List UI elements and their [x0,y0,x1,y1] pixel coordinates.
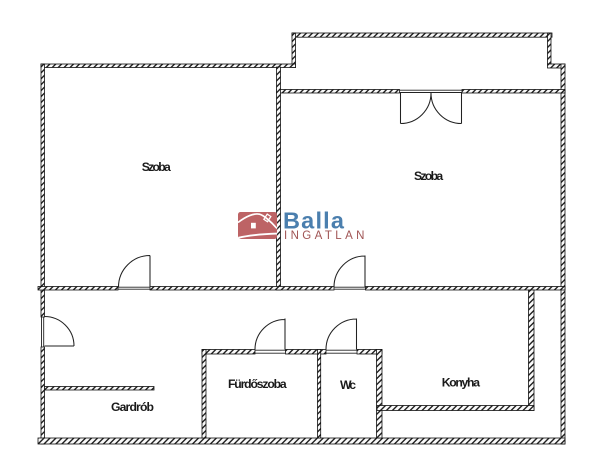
svg-text:INGATLAN: INGATLAN [284,230,368,242]
svg-text:Szoba: Szoba [414,169,443,183]
svg-text:Szoba: Szoba [142,160,171,174]
svg-text:Wc: Wc [340,378,356,392]
svg-text:Gardrób: Gardrób [111,400,154,414]
svg-text:Fürdőszoba: Fürdőszoba [228,377,287,391]
svg-text:Konyha: Konyha [442,375,481,389]
